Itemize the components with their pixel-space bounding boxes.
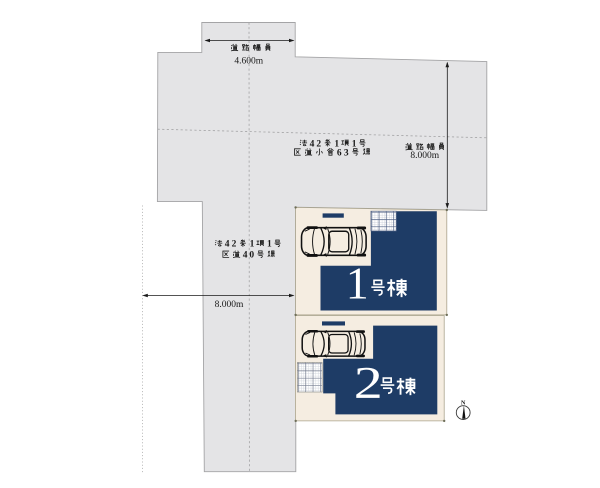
svg-text:1: 1 <box>267 240 272 250</box>
svg-text:4: 4 <box>310 139 315 149</box>
svg-text:4.600m: 4.600m <box>234 57 263 67</box>
svg-text:2: 2 <box>316 139 321 149</box>
svg-text:4: 4 <box>225 240 230 250</box>
svg-text:1: 1 <box>352 139 357 149</box>
svg-text:N: N <box>461 400 466 406</box>
svg-text:2: 2 <box>232 240 237 250</box>
svg-text:6: 6 <box>337 148 342 158</box>
svg-text:2: 2 <box>354 359 383 408</box>
svg-text:8.000m: 8.000m <box>410 151 439 161</box>
svg-text:1: 1 <box>250 240 255 250</box>
svg-text:4: 4 <box>243 251 248 261</box>
svg-text:8.000m: 8.000m <box>215 300 244 310</box>
svg-text:1: 1 <box>346 258 369 309</box>
svg-text:0: 0 <box>249 251 254 261</box>
svg-text:3: 3 <box>344 148 349 158</box>
